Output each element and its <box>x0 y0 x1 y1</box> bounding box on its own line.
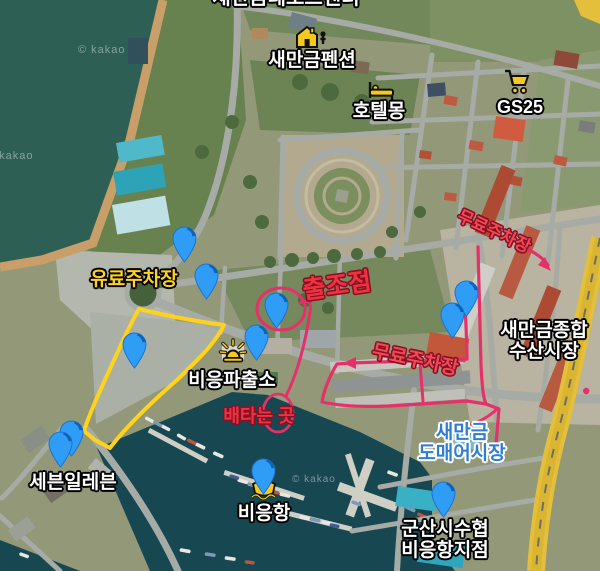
poi-label-port[interactable]: 비응항 <box>238 503 290 524</box>
poi-label-fish-market[interactable]: 새만금종합 수산시장 <box>500 320 587 363</box>
pink-line-fishing <box>286 301 311 396</box>
pin-icon <box>430 480 457 518</box>
poi-label-suhyup-line1: 군산시수협 <box>401 519 488 540</box>
map-pin[interactable] <box>121 331 148 369</box>
pin-icon <box>243 323 270 361</box>
pink-dot <box>583 388 589 394</box>
poi-label-wholesale-line1: 새만금 <box>418 422 505 443</box>
kakao-watermark: © kakao <box>0 150 34 162</box>
poi-label-leports-center[interactable]: 새만금레포츠센터 <box>212 0 359 9</box>
kakao-watermark: © kakao <box>78 44 126 56</box>
pin-icon <box>439 301 466 339</box>
satellite-map: © kakao © kakao © kakao <box>0 0 600 571</box>
map-pin[interactable] <box>171 225 198 263</box>
pin-icon <box>193 262 220 300</box>
annotation-boat-place: 배타는 곳 <box>223 406 294 426</box>
map-pin[interactable] <box>439 301 466 339</box>
poi-label-seven-eleven[interactable]: 세븐일레븐 <box>29 472 116 493</box>
poi-label-fish-market-line2: 수산시장 <box>500 341 587 362</box>
map-pin[interactable] <box>430 480 457 518</box>
poi-label-wholesale-line2: 도매어시장 <box>418 443 505 464</box>
map-pin[interactable] <box>250 457 277 495</box>
poi-label-hotel[interactable]: 호텔몽 <box>353 101 405 122</box>
poi-label-police[interactable]: 비응파출소 <box>188 370 275 391</box>
pink-route-inner-loop <box>322 363 486 406</box>
map-pin[interactable] <box>193 262 220 300</box>
annotation-paid-parking: 유료주차장 <box>90 269 177 290</box>
poi-label-suhyup[interactable]: 군산시수협 비응항지점 <box>401 519 488 562</box>
pin-icon <box>250 457 277 495</box>
map-pin[interactable] <box>47 430 74 468</box>
poi-label-fish-market-line1: 새만금종합 <box>500 320 587 341</box>
poi-label-pension[interactable]: 새만금펜션 <box>268 50 355 71</box>
poi-label-gs25[interactable]: GS25 <box>497 97 543 117</box>
pin-icon <box>47 430 74 468</box>
poi-label-wholesale-market[interactable]: 새만금 도매어시장 <box>418 422 505 465</box>
map-pin[interactable] <box>243 323 270 361</box>
pin-icon <box>121 331 148 369</box>
poi-label-suhyup-line2: 비응항지점 <box>401 540 488 561</box>
pin-icon <box>171 225 198 263</box>
kakao-watermark: © kakao <box>292 474 336 485</box>
